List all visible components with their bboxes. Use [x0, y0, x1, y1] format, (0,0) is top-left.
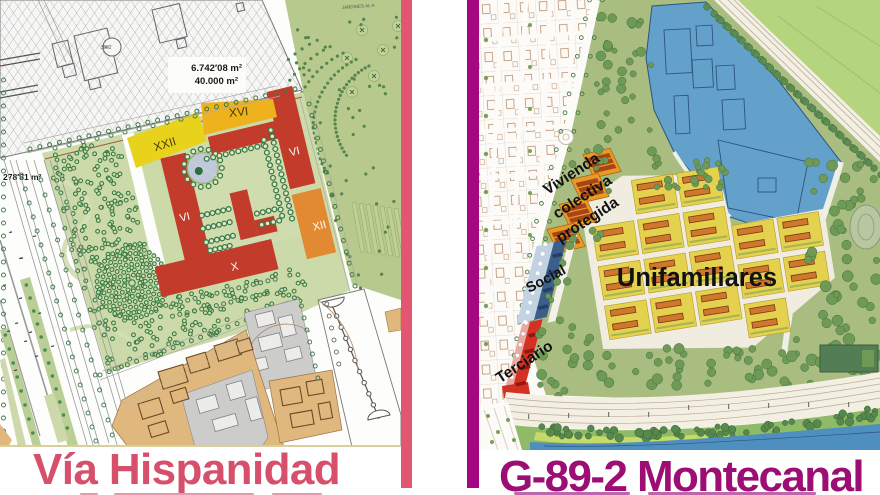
svg-text:6.742′08 m²: 6.742′08 m² [191, 63, 242, 74]
svg-text:40.000 m²: 40.000 m² [195, 76, 238, 87]
svg-text:Unifamiliares: Unifamiliares [617, 264, 777, 292]
svg-text:3902: 3902 [100, 45, 111, 51]
svg-text:XVI: XVI [228, 104, 249, 120]
